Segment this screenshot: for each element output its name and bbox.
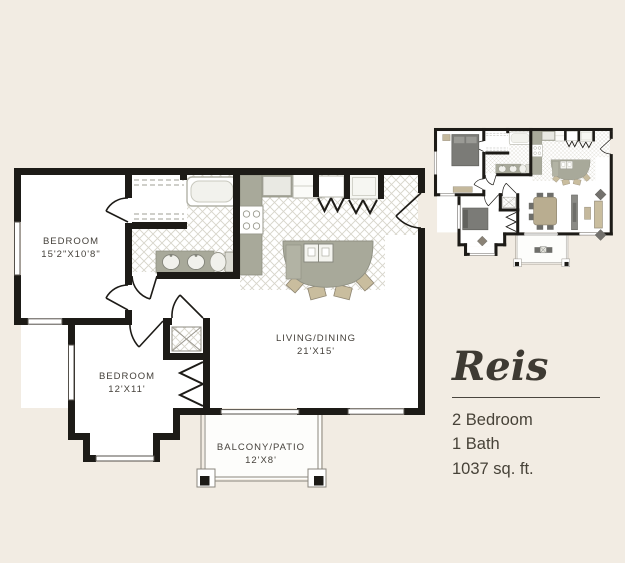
room-label-balcony: BALCONY/PATIO <box>217 442 305 453</box>
plan-info: Reis 2 Bedroom 1 Bath 1037 sq. ft. <box>452 346 612 484</box>
room-label-bedroom2: BEDROOM <box>99 371 155 382</box>
room-label-bedroom1: BEDROOM <box>43 236 99 247</box>
main-floorplan <box>14 168 425 487</box>
title-divider <box>452 397 600 398</box>
floorplan-page: BEDROOM 15'2"X10'8" BEDROOM 12'X11' LIVI… <box>0 0 625 563</box>
room-dims-bedroom2: 12'X11' <box>108 384 145 395</box>
plan-title: Reis <box>452 346 612 388</box>
sofa <box>595 201 603 228</box>
room-dims-living-dining: 21'X15' <box>297 346 335 357</box>
detail-baths: 1 Bath <box>452 435 612 454</box>
room-dims-balcony: 12'X8' <box>245 455 277 466</box>
room-label-living-dining: LIVING/DINING <box>276 333 356 344</box>
nightstand <box>443 135 450 141</box>
patio-set <box>534 247 552 253</box>
detail-bedrooms: 2 Bedroom <box>452 411 612 430</box>
dresser <box>453 187 472 193</box>
room-dims-bedroom1: 15'2"X10'8" <box>41 249 100 260</box>
side-table <box>585 207 591 219</box>
detail-area: 1037 sq. ft. <box>452 460 612 479</box>
